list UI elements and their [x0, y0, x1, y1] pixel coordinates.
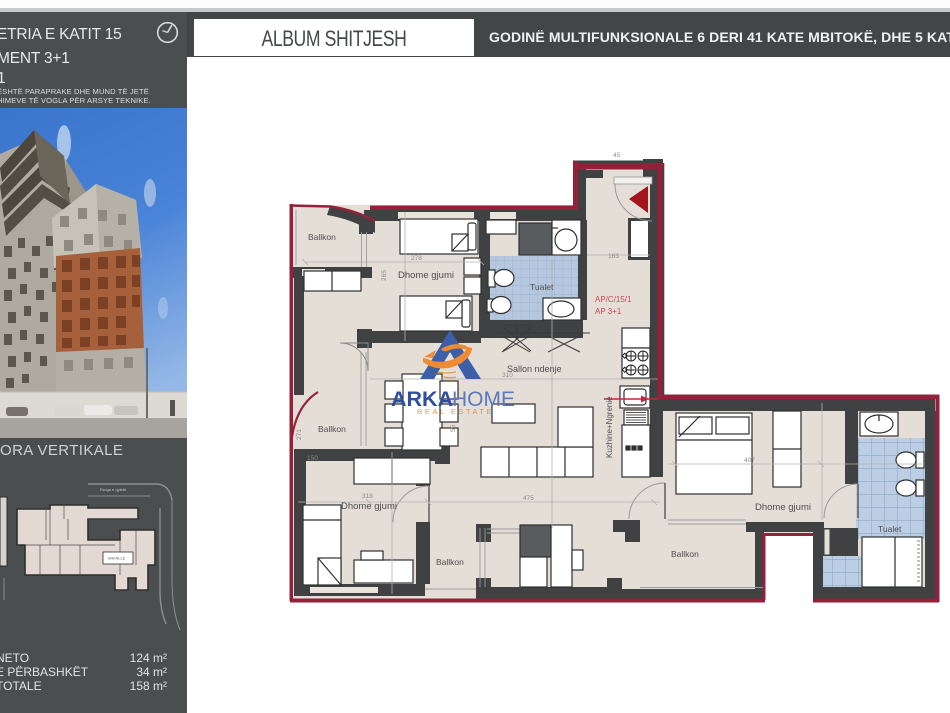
- svg-text:407: 407: [744, 457, 755, 464]
- svg-text:Dhome gjumi: Dhome gjumi: [341, 501, 397, 512]
- svg-text:Dhome gjumi: Dhome gjumi: [755, 502, 811, 513]
- svg-text:163: 163: [608, 253, 619, 260]
- svg-text:45: 45: [613, 152, 621, 159]
- svg-text:150: 150: [307, 455, 318, 462]
- svg-text:Ballkon: Ballkon: [671, 549, 699, 559]
- svg-text:Sallon ndenje: Sallon ndenje: [507, 364, 562, 374]
- svg-text:REAL ESTATE: REAL ESTATE: [417, 407, 494, 416]
- svg-text:Dhome gjumi: Dhome gjumi: [398, 270, 454, 281]
- svg-text:Kuzhine+Ngrenie: Kuzhine+Ngrenie: [605, 396, 614, 458]
- svg-text:Tualet: Tualet: [878, 524, 902, 534]
- svg-text:Ballkon: Ballkon: [308, 232, 336, 242]
- svg-text:AP 3+1: AP 3+1: [595, 307, 622, 316]
- svg-text:265: 265: [381, 270, 388, 281]
- svg-text:55: 55: [450, 424, 457, 432]
- svg-text:271: 271: [296, 429, 303, 440]
- svg-text:Tualet: Tualet: [530, 282, 554, 292]
- svg-text:318: 318: [362, 493, 373, 500]
- svg-text:Ballkon: Ballkon: [318, 424, 346, 434]
- svg-text:278: 278: [411, 255, 422, 262]
- svg-text:AP/C/15/1: AP/C/15/1: [595, 295, 632, 304]
- svg-text:475: 475: [523, 495, 534, 502]
- svg-text:Ballkon: Ballkon: [436, 557, 464, 567]
